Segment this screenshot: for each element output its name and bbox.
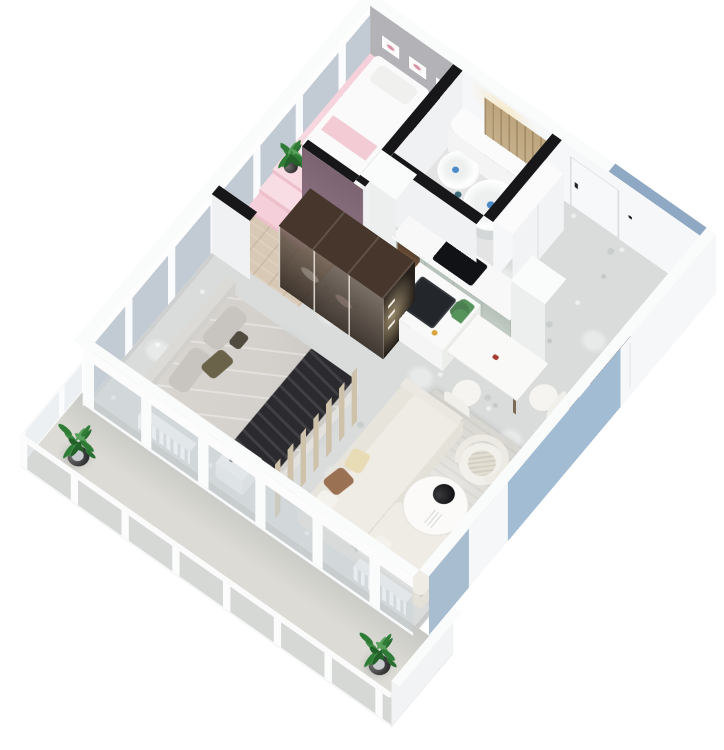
- table-book: [424, 510, 444, 530]
- front-door-handle: [575, 182, 578, 189]
- wall-switch-right: [629, 215, 632, 220]
- lemon-decor: [430, 329, 438, 337]
- table-vase: [492, 354, 500, 361]
- wall-frame-1: [381, 34, 400, 60]
- exterior-seam-line: [630, 343, 631, 388]
- frame-art-2: [413, 61, 423, 74]
- frame-art-1: [386, 41, 396, 54]
- entry-cabinet-seam: [537, 203, 538, 261]
- shelf-stack-3: [388, 298, 395, 309]
- shelf-stack-1: [388, 319, 395, 330]
- floorplan-stage: [0, 0, 724, 750]
- black-bowl: [428, 480, 459, 508]
- shelf-stack-2: [388, 309, 395, 320]
